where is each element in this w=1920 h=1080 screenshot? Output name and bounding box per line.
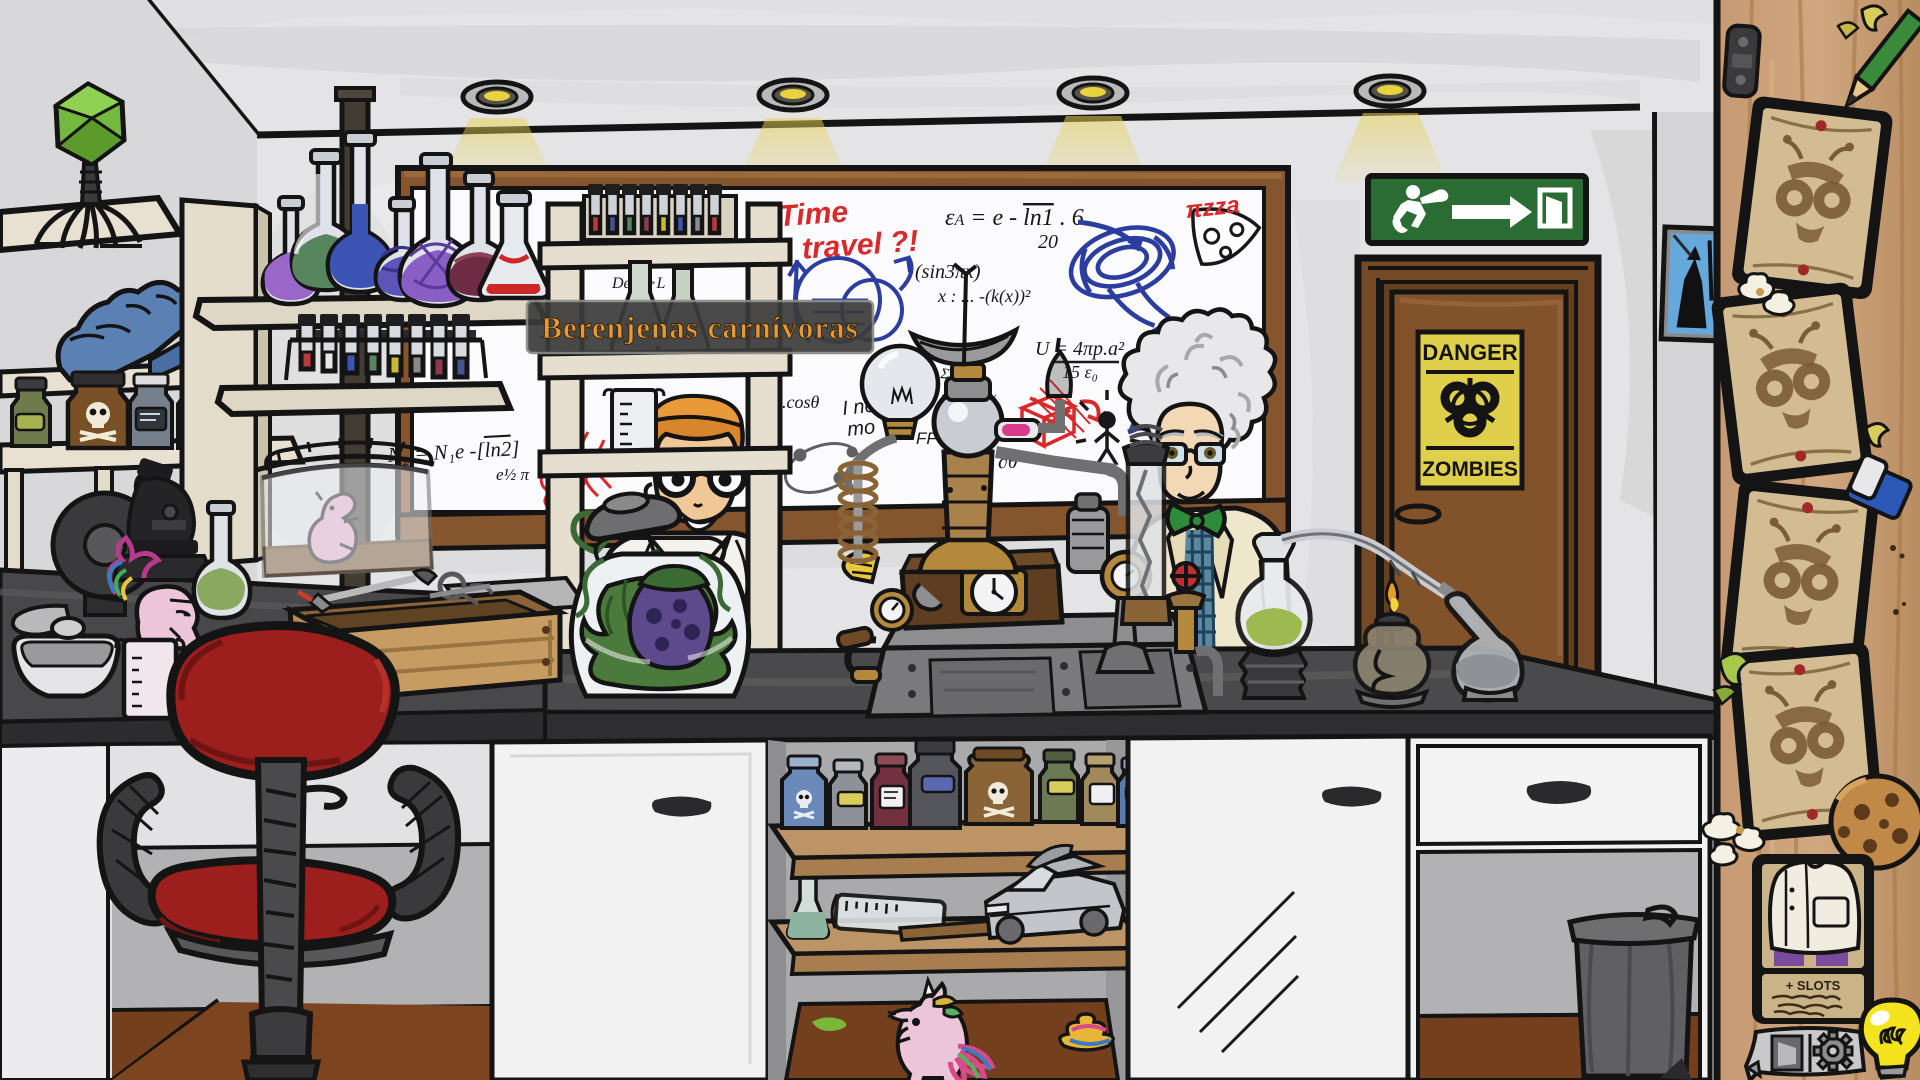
svg-text:x : ... -(k(x))²: x : ... -(k(x))² (937, 286, 1031, 307)
svg-text:ZOMBIES: ZOMBIES (1422, 458, 1518, 481)
svg-text:DANGER: DANGER (1422, 340, 1517, 365)
svg-text:πzza: πzza (1184, 192, 1241, 225)
svg-text:.cosθ: .cosθ (782, 392, 819, 412)
svg-text:20: 20 (1038, 231, 1058, 253)
svg-text:Berenjenas carnívoras: Berenjenas carnívoras (541, 310, 858, 345)
svg-text:εA = e - ln1 . 6: εA = e - ln1 . 6 (945, 205, 1084, 231)
svg-text:mo: mo (846, 416, 876, 441)
svg-text:Time: Time (777, 195, 849, 233)
svg-text:e½ π: e½ π (496, 465, 530, 484)
svg-text:+ SLOTS: + SLOTS (1786, 978, 1841, 993)
svg-text:U = 4πp.a²: U = 4πp.a² (1035, 338, 1125, 360)
